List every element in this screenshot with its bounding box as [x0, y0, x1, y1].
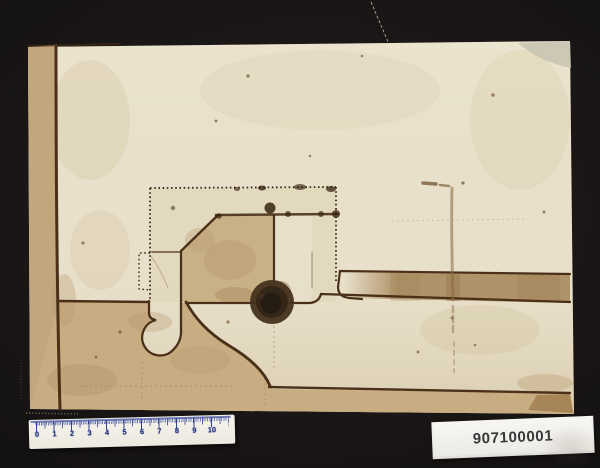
- ruler-number: 8: [175, 426, 179, 435]
- mount-corner-highlight: [504, 396, 600, 468]
- ruler-number: 10: [208, 425, 217, 434]
- archival-photograph: 0 1 2 3 4 5 6 7 8 9 10 907100001: [0, 0, 600, 468]
- ruler-number: 1: [52, 429, 56, 438]
- scale-ruler: 0 1 2 3 4 5 6 7 8 9 10: [29, 415, 236, 449]
- ruler-number: 9: [192, 426, 196, 435]
- mount-scratch-mark: [371, 2, 389, 44]
- ruler-number: 3: [87, 428, 91, 437]
- ruler-number: 0: [35, 430, 39, 439]
- ruler-number: 6: [140, 427, 144, 436]
- ruler-number: 2: [70, 429, 74, 438]
- ruler-number: 4: [105, 428, 109, 437]
- ruler-number: 5: [122, 427, 126, 436]
- ink-seal-blot: [250, 280, 294, 324]
- ruler-number: 7: [157, 427, 161, 436]
